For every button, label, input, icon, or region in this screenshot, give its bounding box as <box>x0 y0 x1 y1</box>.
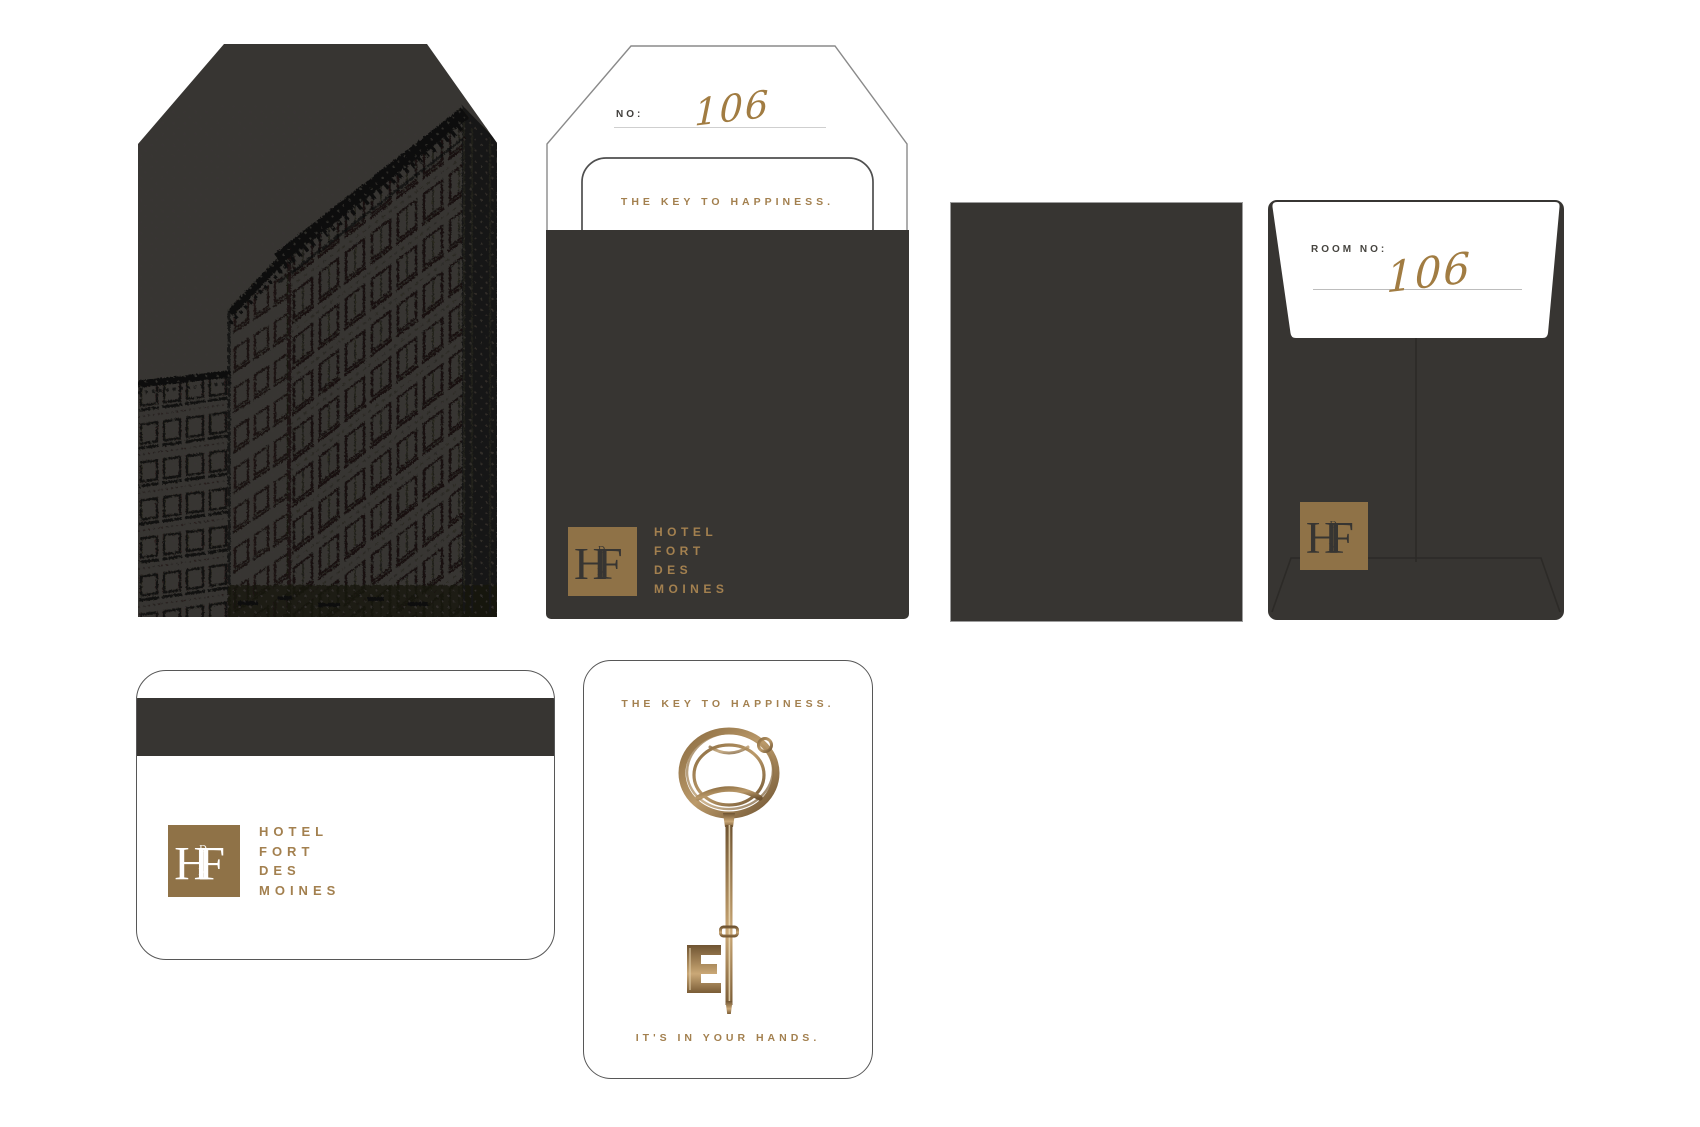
room-number-label: ROOM NO: <box>1311 244 1387 255</box>
key-envelope-back: ROOM NO: 106 H F D M <box>1268 200 1564 620</box>
key-envelope-front: NO: 106 THE KEY TO HAPPINESS. H F D M HO… <box>546 43 909 619</box>
card-tagline-bottom: IT'S IN YOUR HANDS. <box>584 1032 872 1044</box>
monogram-icon: H F D M <box>1300 502 1368 570</box>
key-card-back: H F D M HOTEL FORT DES MOINES <box>136 670 555 960</box>
building-facade <box>138 103 498 618</box>
svg-text:D: D <box>1330 520 1337 531</box>
svg-text:M: M <box>198 867 207 878</box>
monogram-icon: H F D M <box>168 825 240 897</box>
monogram-icon: H F D M <box>568 527 637 596</box>
brand-logo: H F D M HOTEL FORT DES MOINES <box>168 822 340 900</box>
brand-logo: H F D M HOTEL FORT DES MOINES <box>568 523 728 599</box>
wordmark: HOTEL FORT DES MOINES <box>259 822 340 900</box>
inserted-card-tagline: THE KEY TO HAPPINESS. <box>546 196 909 208</box>
room-number-label: NO: <box>616 109 643 120</box>
svg-text:D: D <box>598 545 605 556</box>
svg-text:M: M <box>1329 541 1338 552</box>
skeleton-key-icon <box>584 661 874 1080</box>
svg-text:M: M <box>597 567 606 578</box>
building-tag <box>138 43 498 618</box>
wordmark: HOTEL FORT DES MOINES <box>654 523 728 599</box>
dark-sleeve <box>950 202 1243 622</box>
svg-text:D: D <box>199 844 207 855</box>
magnetic-stripe <box>137 698 554 756</box>
building-illustration <box>138 43 498 618</box>
key-card-front: THE KEY TO HAPPINESS. <box>583 660 873 1079</box>
